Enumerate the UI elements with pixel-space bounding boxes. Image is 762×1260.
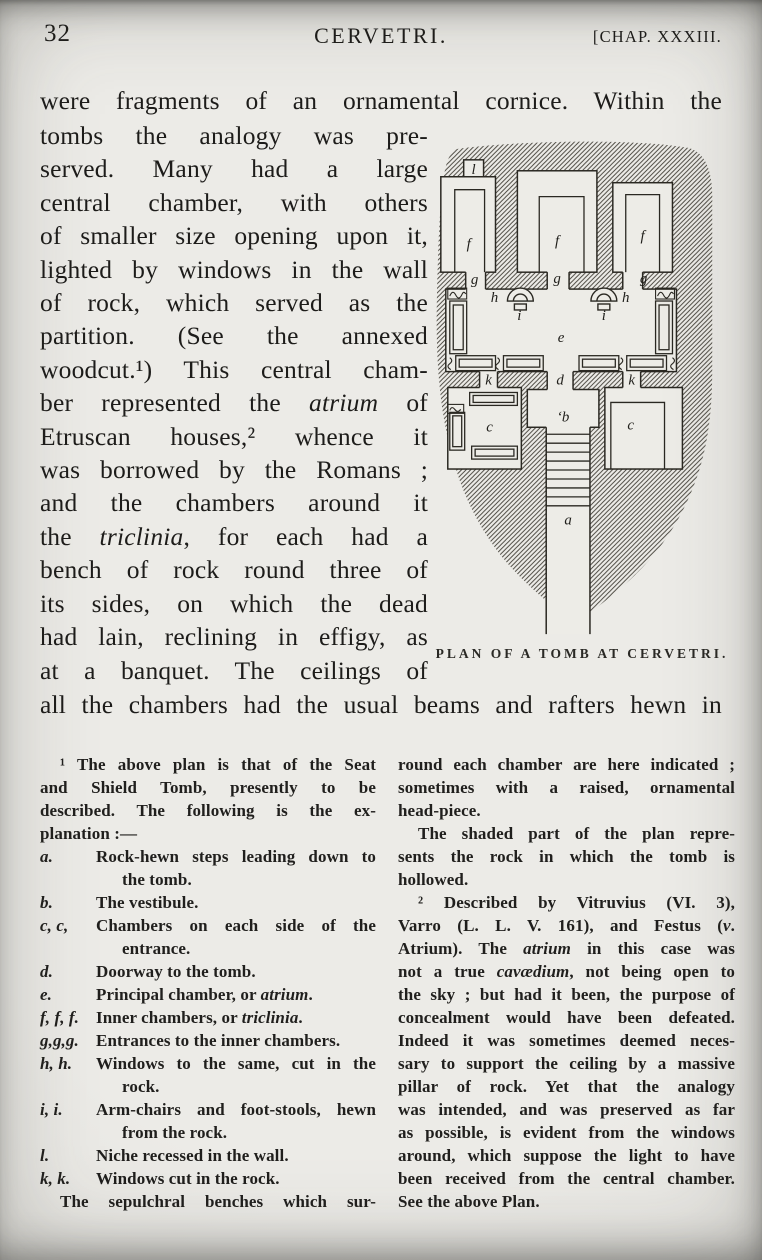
legend-item-text: Arm-chairs and foot-stools, hewnfrom the… (96, 1098, 376, 1144)
text-line: pillar of rock. Yet that the analogy (398, 1075, 735, 1098)
text-line: sents the rock in which the tomb is (398, 845, 735, 868)
legend-item-label: f, f, f. (40, 1006, 96, 1029)
text-line: head-piece. (398, 799, 735, 822)
text-line: Chambers on each side of the (96, 914, 376, 937)
text-line: Etruscan houses,² whence it (40, 420, 428, 453)
text-line: Indeed it was sometimes deemed neces- (398, 1029, 735, 1052)
text-line: and the chambers around it (40, 486, 428, 519)
chamber-f-left (441, 177, 496, 272)
text-line: the triclinia, for each had a (40, 520, 428, 553)
plan-label-c: c (486, 419, 493, 435)
book-page: 32 CERVETRI. [CHAP. XXXIII. were fragmen… (0, 0, 762, 1260)
text-line: ber represented the atrium of (40, 386, 428, 419)
legend-item-label: l. (40, 1144, 96, 1167)
legend-item: l.Niche recessed in the wall. (40, 1144, 376, 1167)
footnote-left-closing-line: The sepulchral benches which sur- (40, 1190, 376, 1213)
main-text-column: tombs the analogy was pre-served. Many h… (40, 119, 428, 687)
legend-item: c, c,Chambers on each side of theentranc… (40, 914, 376, 960)
figure-caption: PLAN OF A TOMB AT CERVETRI. (427, 646, 737, 662)
text-line: ² Described by Vitruvius (VI. 3), (398, 891, 735, 914)
text-line: Inner chambers, or triclinia. (96, 1006, 376, 1029)
text-line: was borrowed by the Romans ; (40, 453, 428, 486)
plan-label-k: k (628, 373, 635, 389)
main-text-closing-line: all the chambers had the usual beams and… (40, 688, 722, 721)
text-line: described. The following is the ex- (40, 799, 376, 822)
text-line: sary to support the ceiling by a massive (398, 1052, 735, 1075)
text-line: Atrium). The atrium in this case was (398, 937, 735, 960)
text-line: the tomb. (96, 868, 376, 891)
legend-item-text: Entrances to the inner chambers. (96, 1029, 376, 1052)
chamber-c-right (605, 388, 683, 470)
tomb-plan-drawing: lfffggghhiiekdk‘bcca (427, 133, 737, 645)
legend-item-label: d. (40, 960, 96, 983)
plan-label-b: ‘b (557, 409, 569, 425)
plan-label-d: d (556, 373, 564, 389)
text-line: served. Many had a large (40, 152, 428, 185)
text-line: rock. (96, 1075, 376, 1098)
text-line: Arm-chairs and foot-stools, hewn (96, 1098, 376, 1121)
plan-label-i: i (602, 308, 606, 324)
legend-item: a.Rock-hewn steps leading down tothe tom… (40, 845, 376, 891)
plan-label-g: g (471, 272, 479, 288)
text-line: planation :— (40, 822, 376, 845)
legend-item-text: Windows cut in the rock. (96, 1167, 376, 1190)
text-line: of rock, which served as the (40, 286, 428, 319)
footnote-column-right: round each chamber are here indicated ;s… (398, 753, 735, 1213)
text-line: was intended, and was preserved as far (398, 1098, 735, 1121)
text-line: The shaded part of the plan repre- (398, 822, 735, 845)
text-line: of smaller size opening upon it, (40, 219, 428, 252)
plan-label-g: g (640, 271, 648, 287)
legend-item-text: The vestibule. (96, 891, 376, 914)
footnote-column-left: ¹ The above plan is that of the Seatand … (40, 753, 376, 1213)
text-line: Windows cut in the rock. (96, 1167, 376, 1190)
legend-item-text: Principal chamber, or atrium. (96, 983, 376, 1006)
legend-item: d.Doorway to the tomb. (40, 960, 376, 983)
text-line: Entrances to the inner chambers. (96, 1029, 376, 1052)
text-line: Rock-hewn steps leading down to (96, 845, 376, 868)
legend-item: k, k.Windows cut in the rock. (40, 1167, 376, 1190)
text-line: central chamber, with others (40, 186, 428, 219)
text-line: at a banquet. The ceilings of (40, 654, 428, 687)
legend-item: i, i.Arm-chairs and foot-stools, hewnfro… (40, 1098, 376, 1144)
legend-item-label: h, h. (40, 1052, 96, 1098)
chamber-c-left (448, 388, 522, 470)
text-line: hollowed. (398, 868, 735, 891)
text-line: partition. (See the annexed (40, 319, 428, 352)
footnote-legend-list: a.Rock-hewn steps leading down tothe tom… (40, 845, 376, 1190)
footnote-1-intro: ¹ The above plan is that of the Seatand … (40, 753, 376, 845)
legend-item-text: Inner chambers, or triclinia. (96, 1006, 376, 1029)
legend-item: e.Principal chamber, or atrium. (40, 983, 376, 1006)
chapter-header: [CHAP. XXXIII. (593, 27, 722, 47)
text-line: around, which suppose the light to have (398, 1144, 735, 1167)
legend-item: h, h.Windows to the same, cut in therock… (40, 1052, 376, 1098)
plan-label-h: h (491, 290, 498, 306)
plan-label-e: e (558, 330, 565, 346)
legend-item-label: g,g,g. (40, 1029, 96, 1052)
legend-item-text: Rock-hewn steps leading down tothe tomb. (96, 845, 376, 891)
text-line: ¹ The above plan is that of the Seat (40, 753, 376, 776)
text-line: The vestibule. (96, 891, 376, 914)
legend-item: f, f, f.Inner chambers, or triclinia. (40, 1006, 376, 1029)
text-line: See the above Plan. (398, 1190, 735, 1213)
text-line: woodcut.¹) This central cham- (40, 353, 428, 386)
text-line: been received from the central chamber. (398, 1167, 735, 1190)
legend-item-label: i, i. (40, 1098, 96, 1144)
legend-item: b.The vestibule. (40, 891, 376, 914)
legend-item-text: Niche recessed in the wall. (96, 1144, 376, 1167)
legend-item-text: Doorway to the tomb. (96, 960, 376, 983)
plan-label-i: i (517, 308, 521, 324)
legend-item-label: k, k. (40, 1167, 96, 1190)
tomb-plan-figure: lfffggghhiiekdk‘bcca (427, 133, 737, 650)
legend-item: g,g,g.Entrances to the inner chambers. (40, 1029, 376, 1052)
text-line: the sky ; but had it been, the purpose o… (398, 983, 735, 1006)
plan-label-k: k (485, 373, 492, 389)
text-line: Niche recessed in the wall. (96, 1144, 376, 1167)
text-line: and Shield Tomb, presently to be (40, 776, 376, 799)
text-line: from the rock. (96, 1121, 376, 1144)
plan-label-c: c (627, 417, 634, 433)
legend-item-text: Windows to the same, cut in therock. (96, 1052, 376, 1098)
text-line: Principal chamber, or atrium. (96, 983, 376, 1006)
legend-item-label: b. (40, 891, 96, 914)
legend-item-label: e. (40, 983, 96, 1006)
plan-label-h: h (622, 290, 629, 306)
text-line: Doorway to the tomb. (96, 960, 376, 983)
text-line: Windows to the same, cut in the (96, 1052, 376, 1075)
text-line: tombs the analogy was pre- (40, 119, 428, 152)
text-line: bench of rock round three of (40, 553, 428, 586)
text-line: round each chamber are here indicated ; (398, 753, 735, 776)
legend-item-text: Chambers on each side of theentrance. (96, 914, 376, 960)
text-line: its sides, on which the dead (40, 587, 428, 620)
plan-label-g: g (553, 271, 561, 287)
text-line: sometimes with a raised, ornamental (398, 776, 735, 799)
text-line: lighted by windows in the wall (40, 253, 428, 286)
text-line: had lain, reclining in effigy, as (40, 620, 428, 653)
plan-label-a: a (564, 513, 571, 529)
text-line: entrance. (96, 937, 376, 960)
text-line: Varro (L. L. V. 161), and Festus (v. (398, 914, 735, 937)
text-line: concealment would have been defeated. (398, 1006, 735, 1029)
text-line: not a true cavædium, not being open to (398, 960, 735, 983)
text-line: as possible, is evident from the windows (398, 1121, 735, 1144)
legend-item-label: a. (40, 845, 96, 891)
legend-item-label: c, c, (40, 914, 96, 960)
plan-label-l: l (472, 162, 476, 178)
chamber-f-middle (517, 171, 597, 272)
main-text-opening-line: were fragments of an ornamental cornice.… (40, 84, 722, 117)
